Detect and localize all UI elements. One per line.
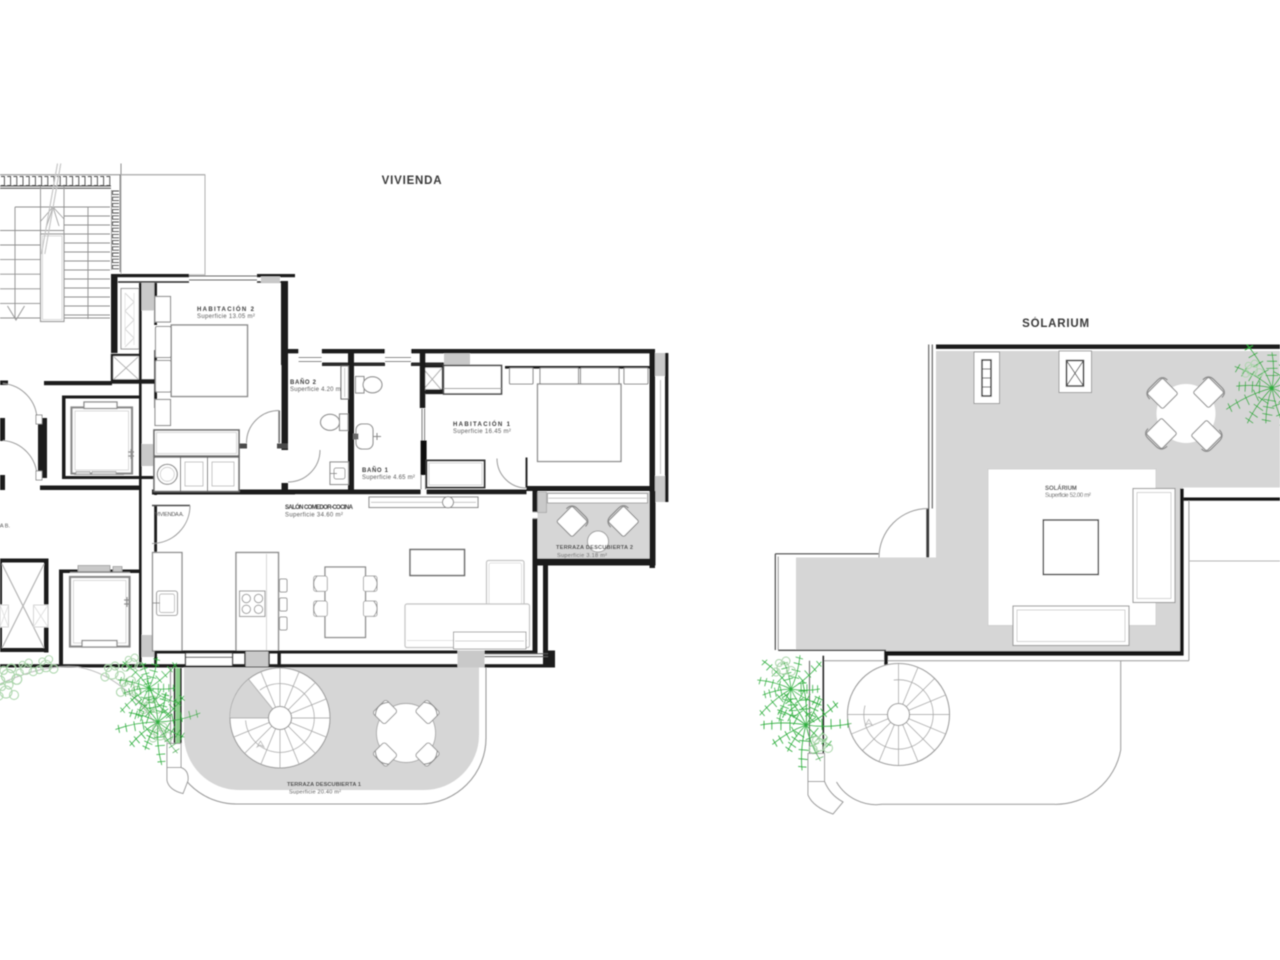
svg-text:SOLÁRIUM: SOLÁRIUM bbox=[1045, 485, 1077, 492]
svg-text:Superficie 4.65 m²: Superficie 4.65 m² bbox=[362, 475, 415, 481]
svg-text:Superficie 13.05 m²: Superficie 13.05 m² bbox=[197, 314, 255, 320]
svg-text:TERRAZA DESCUBIERTA 2: TERRAZA DESCUBIERTA 2 bbox=[556, 545, 633, 551]
svg-text:SÓLARIUM: SÓLARIUM bbox=[1022, 317, 1090, 330]
svg-text:Superficie 4.20 m²: Superficie 4.20 m² bbox=[290, 387, 343, 393]
svg-text:Superficie 16.45 m²: Superficie 16.45 m² bbox=[453, 429, 511, 435]
svg-text:Superficie 52.00 m²: Superficie 52.00 m² bbox=[1045, 493, 1091, 499]
svg-text:VIVIENDA A.: VIVIENDA A. bbox=[155, 512, 184, 518]
svg-text:HABITACIÓN 1: HABITACIÓN 1 bbox=[453, 420, 511, 428]
svg-text:BAÑO 1: BAÑO 1 bbox=[362, 467, 389, 474]
svg-text:VIVIENDA B.: VIVIENDA B. bbox=[0, 524, 10, 530]
svg-text:BAÑO 2: BAÑO 2 bbox=[290, 379, 317, 386]
svg-text:VIVIENDA: VIVIENDA bbox=[382, 175, 443, 187]
svg-text:Superficie 3.18 m²: Superficie 3.18 m² bbox=[557, 553, 607, 559]
svg-text:TERRAZA DESCUBIERTA 1: TERRAZA DESCUBIERTA 1 bbox=[287, 782, 361, 788]
svg-text:Superficie 20.40 m²: Superficie 20.40 m² bbox=[289, 790, 341, 796]
svg-text:SALÓN COMEDOR-COCINA: SALÓN COMEDOR-COCINA bbox=[285, 503, 354, 511]
svg-text:HABITACIÓN 2: HABITACIÓN 2 bbox=[197, 305, 255, 313]
svg-text:Superficie 34.60 m²: Superficie 34.60 m² bbox=[285, 513, 343, 519]
